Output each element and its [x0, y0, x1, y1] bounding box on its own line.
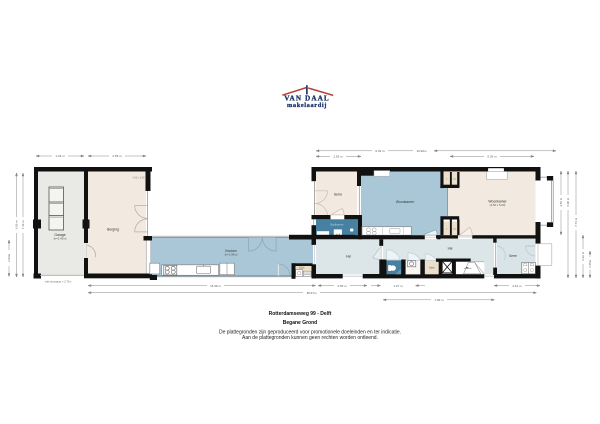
svg-text:38.67m: 38.67m	[306, 291, 317, 295]
svg-text:Kast: Kast	[429, 266, 434, 270]
svg-text:2.61 m: 2.61 m	[512, 284, 522, 288]
svg-text:1.23 m: 1.23 m	[55, 154, 65, 158]
svg-text:1.55m: 1.55m	[588, 259, 592, 268]
svg-text:6.96 m: 6.96 m	[14, 220, 18, 229]
svg-text:2.65 m: 2.65 m	[337, 284, 347, 288]
svg-text:6.90 m: 6.90 m	[566, 197, 570, 206]
svg-text:makelaardij: makelaardij	[287, 102, 327, 109]
svg-text:5.03 m: 5.03 m	[487, 155, 497, 159]
svg-text:vrije doorgang = 2.75m: vrije doorgang = 2.75m	[45, 280, 72, 284]
svg-text:7.09 m: 7.09 m	[434, 298, 444, 302]
svg-text:Kast: Kast	[453, 228, 457, 231]
svg-text:2.42 m: 2.42 m	[581, 251, 585, 260]
svg-text:10.92m: 10.92m	[416, 149, 427, 153]
svg-text:Begane Grond: Begane Grond	[283, 320, 317, 326]
svg-text:15.36 m: 15.36 m	[210, 284, 221, 288]
svg-text:Hal: Hal	[448, 246, 453, 250]
svg-text:VAN DAAL: VAN DAAL	[284, 94, 330, 102]
svg-text:1.27 m: 1.27 m	[393, 284, 403, 288]
svg-text:Kast: Kast	[453, 178, 457, 181]
svg-text:(4.56 x 5.03): (4.56 x 5.03)	[490, 203, 506, 207]
svg-text:Aan de plattegronden kunnen ge: Aan de plattegronden kunnen geen rechten…	[242, 335, 378, 341]
svg-text:2.93m: 2.93m	[7, 253, 11, 262]
svg-text:Badkamer: Badkamer	[330, 222, 343, 226]
svg-text:Woonkamer: Woonkamer	[396, 200, 415, 204]
svg-text:4.65 m: 4.65 m	[112, 154, 122, 158]
svg-text:Serre: Serre	[509, 254, 517, 258]
svg-text:Serre: Serre	[334, 193, 342, 197]
svg-text:4.56 m: 4.56 m	[559, 197, 563, 206]
svg-text:Hal: Hal	[346, 255, 351, 259]
svg-text:4.65 x 3.58: 4.65 x 3.58	[133, 176, 145, 179]
svg-text:6.34 m: 6.34 m	[375, 149, 385, 153]
svg-text:7.74 m: 7.74 m	[574, 217, 578, 226]
svg-text:(h=2.98m): (h=2.98m)	[225, 252, 238, 256]
svg-text:Berging: Berging	[107, 228, 119, 232]
svg-text:7.13 m: 7.13 m	[21, 220, 25, 229]
svg-text:Rotterdamseweg 99 - Delft: Rotterdamseweg 99 - Delft	[269, 311, 332, 317]
svg-text:(h=2.45m): (h=2.45m)	[54, 237, 67, 241]
svg-text:2.93 m: 2.93 m	[333, 155, 343, 159]
